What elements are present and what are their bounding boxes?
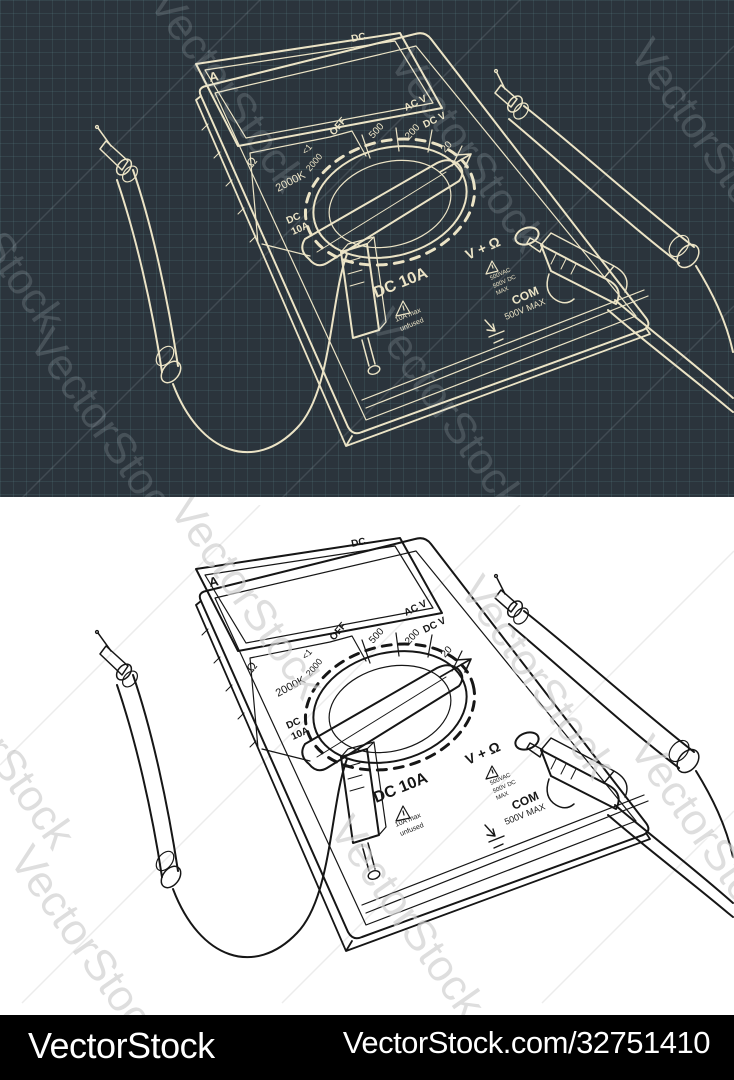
footer-bar: VectorStock VectorStock.com/32751410 [0, 1015, 734, 1080]
panel-blueprint-light: VectorStock VectorStock VectorStock Vect… [0, 497, 734, 1015]
footer-image-url: VectorStock.com/32751410 [343, 1025, 710, 1061]
stock-image-preview: VectorStock VectorStock VectorStock Vect… [0, 0, 734, 1080]
panel-blueprint-dark: VectorStock VectorStock VectorStock Vect… [0, 0, 734, 497]
multimeter-illustration-light [0, 505, 734, 1005]
footer-brand-logo: VectorStock [28, 1025, 215, 1067]
multimeter-illustration-dark [0, 0, 734, 497]
